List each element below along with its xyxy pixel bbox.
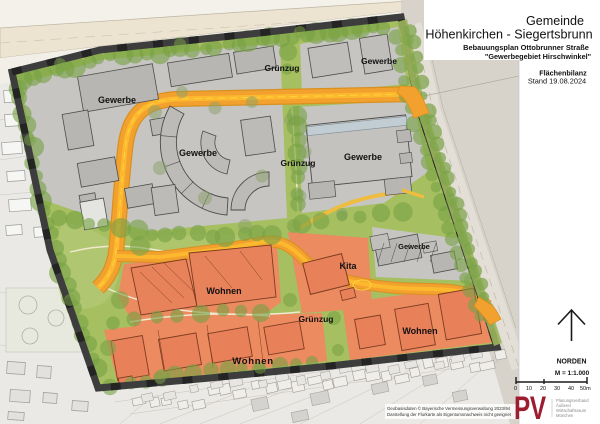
svg-text:Wohnen: Wohnen: [206, 286, 241, 296]
svg-text:Höhenkirchen - Siegertsbrunn: Höhenkirchen - Siegertsbrunn: [425, 28, 592, 42]
svg-text:Darstellung der Flurkarte als: Darstellung der Flurkarte als Eigentumsn…: [387, 412, 512, 417]
svg-text:Bebauungsplan Ottobrunner Str: Bebauungsplan Ottobrunner Straße: [463, 43, 589, 52]
svg-text:Gewerbe: Gewerbe: [179, 148, 217, 158]
svg-text:NORDEN: NORDEN: [557, 359, 587, 366]
svg-text:Kita: Kita: [339, 261, 357, 271]
svg-text:Geobasisdaten © Bayerische Ver: Geobasisdaten © Bayerische Vermessungsve…: [387, 406, 511, 411]
svg-text:Gewerbe: Gewerbe: [344, 152, 382, 162]
svg-text:Wohnen: Wohnen: [402, 326, 437, 336]
svg-text:"Gewerbegebiet Hirschwinkel": "Gewerbegebiet Hirschwinkel": [485, 52, 591, 61]
svg-text:München: München: [556, 413, 574, 418]
svg-text:30: 30: [554, 386, 560, 392]
svg-text:Grünzug: Grünzug: [281, 158, 316, 168]
svg-text:50m: 50m: [580, 386, 591, 392]
svg-text:Stand 19.08.2024: Stand 19.08.2024: [528, 77, 586, 86]
svg-text:PV: PV: [514, 391, 546, 424]
svg-text:Gewerbe: Gewerbe: [98, 95, 136, 105]
svg-text:Grünzug: Grünzug: [265, 63, 300, 73]
svg-text:Gewerbe: Gewerbe: [361, 56, 397, 66]
svg-text:M = 1:1.000: M = 1:1.000: [555, 370, 590, 377]
svg-text:Grünzug: Grünzug: [299, 314, 334, 324]
svg-text:40: 40: [568, 386, 574, 392]
svg-text:Wohnen: Wohnen: [232, 356, 274, 367]
svg-text:Gewerbe: Gewerbe: [398, 242, 430, 251]
svg-text:Gemeinde: Gemeinde: [526, 14, 584, 28]
